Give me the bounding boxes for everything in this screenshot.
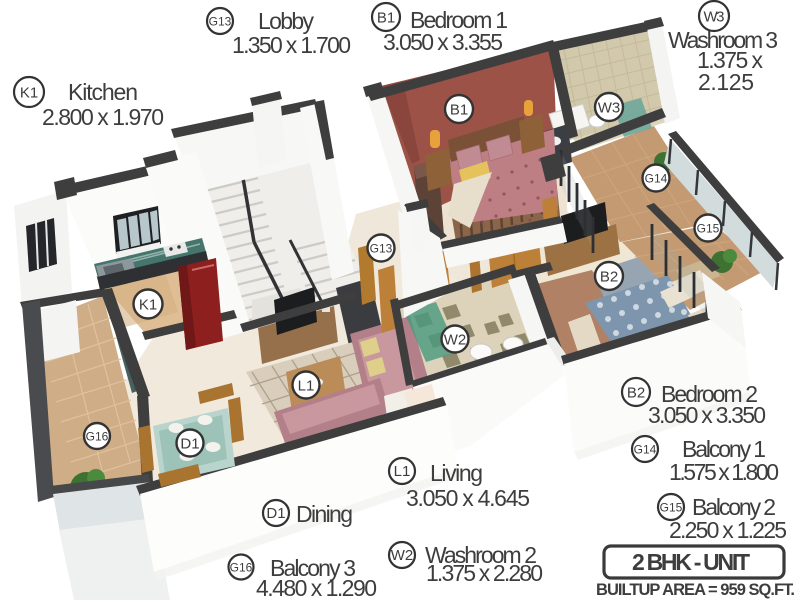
svg-text:W3: W3 bbox=[704, 9, 725, 26]
svg-text:G15: G15 bbox=[697, 222, 720, 236]
svg-text:2.125: 2.125 bbox=[698, 69, 754, 95]
svg-text:BUILTUP AREA = 959 SQ.FT.: BUILTUP AREA = 959 SQ.FT. bbox=[596, 581, 795, 599]
svg-text:D1: D1 bbox=[266, 505, 285, 522]
svg-text:3.050 x 4.645: 3.050 x 4.645 bbox=[406, 485, 530, 511]
svg-text:3.050 x 3.350: 3.050 x 3.350 bbox=[648, 402, 766, 428]
svg-text:G16: G16 bbox=[86, 430, 109, 444]
svg-text:D1: D1 bbox=[180, 436, 199, 453]
svg-text:3.050 x 3.355: 3.050 x 3.355 bbox=[383, 29, 503, 55]
svg-text:G14: G14 bbox=[634, 443, 657, 457]
svg-text:4.480 x 1.290: 4.480 x 1.290 bbox=[256, 575, 377, 600]
svg-text:Kitchen: Kitchen bbox=[68, 79, 138, 105]
svg-text:L1: L1 bbox=[298, 378, 315, 395]
svg-text:G13: G13 bbox=[370, 242, 393, 256]
svg-text:W2: W2 bbox=[444, 332, 467, 349]
svg-text:B2: B2 bbox=[627, 385, 645, 402]
svg-text:2.250 x 1.225: 2.250 x 1.225 bbox=[669, 517, 787, 543]
svg-text:L1: L1 bbox=[394, 463, 411, 480]
svg-text:2.800 x 1.970: 2.800 x 1.970 bbox=[42, 104, 164, 130]
svg-text:B1: B1 bbox=[450, 102, 468, 119]
svg-text:W3: W3 bbox=[598, 100, 621, 117]
svg-text:2 BHK - UNIT: 2 BHK - UNIT bbox=[632, 549, 750, 575]
svg-text:G15: G15 bbox=[660, 501, 683, 515]
svg-text:Lobby: Lobby bbox=[258, 8, 315, 34]
svg-text:K1: K1 bbox=[139, 297, 157, 314]
svg-text:G14: G14 bbox=[645, 172, 668, 186]
svg-text:1.575 x 1.800: 1.575 x 1.800 bbox=[669, 459, 779, 485]
svg-text:K1: K1 bbox=[20, 85, 38, 102]
svg-text:W2: W2 bbox=[391, 547, 414, 564]
svg-text:Living: Living bbox=[430, 460, 483, 486]
svg-text:G13: G13 bbox=[209, 15, 232, 29]
svg-text:Dining: Dining bbox=[296, 501, 353, 527]
svg-text:B1: B1 bbox=[377, 10, 395, 27]
svg-text:1.350 x 1.700: 1.350 x 1.700 bbox=[232, 32, 351, 58]
svg-text:B2: B2 bbox=[600, 269, 618, 286]
svg-text:G16: G16 bbox=[230, 561, 253, 575]
svg-text:1.375 x 2.280: 1.375 x 2.280 bbox=[426, 560, 543, 586]
